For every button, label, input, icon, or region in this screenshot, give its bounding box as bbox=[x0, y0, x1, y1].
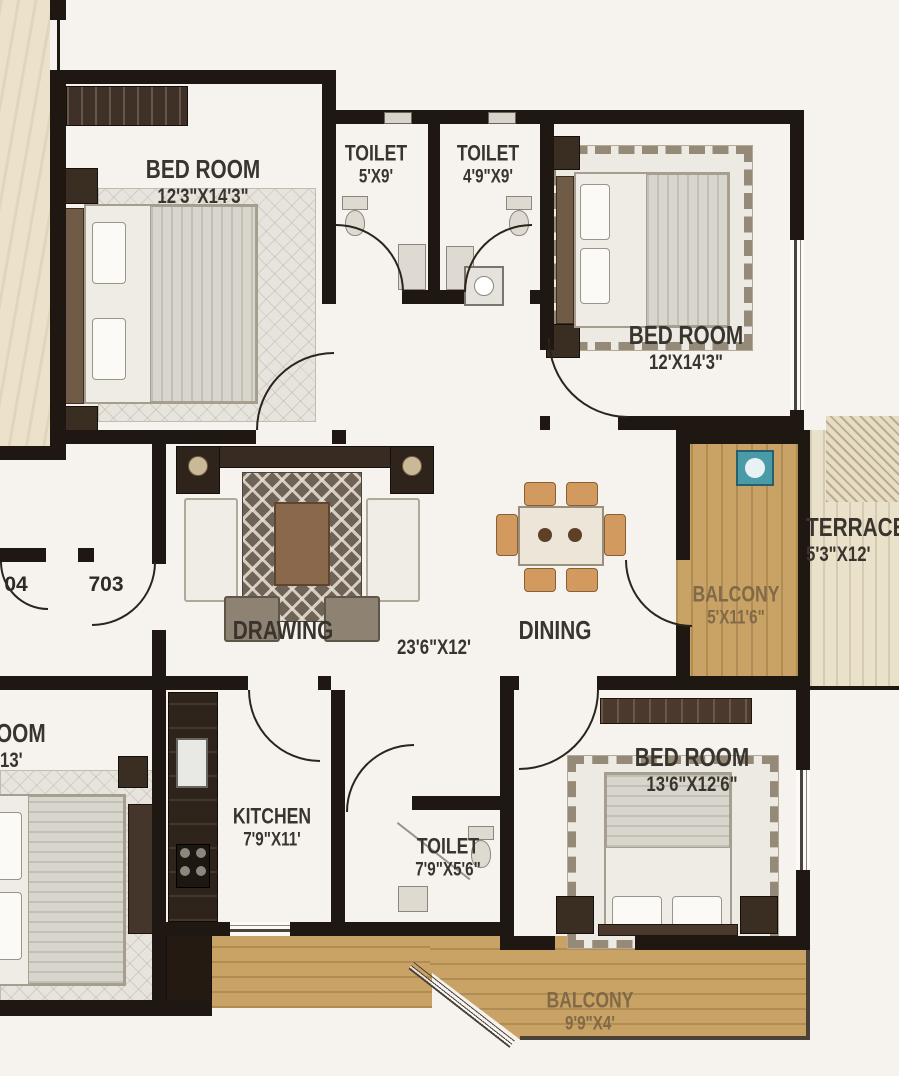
window bbox=[790, 240, 804, 410]
wall bbox=[152, 444, 166, 564]
wall bbox=[530, 290, 554, 304]
room-dims: 12'3"X14'3" bbox=[146, 184, 260, 210]
wall bbox=[0, 446, 66, 460]
bowl bbox=[568, 528, 582, 542]
wall bbox=[0, 676, 166, 690]
bed-blanket bbox=[646, 174, 728, 326]
room-name: BALCONY bbox=[546, 988, 633, 1013]
wall bbox=[635, 936, 810, 950]
bed-headboard bbox=[556, 176, 574, 324]
lamp bbox=[402, 456, 422, 476]
wall bbox=[790, 110, 804, 240]
room-name: BED ROOM bbox=[635, 742, 749, 772]
terrace-bottom-edge bbox=[810, 686, 899, 690]
room-label-bedroom-top-left: BED ROOM 12'3"X14'3" bbox=[132, 154, 275, 210]
ventilator bbox=[488, 112, 516, 124]
wall bbox=[290, 922, 510, 936]
dining-chair bbox=[496, 514, 518, 556]
room-name: BALCONY bbox=[692, 582, 779, 607]
wall bbox=[796, 690, 810, 770]
wall bbox=[500, 690, 514, 936]
burner bbox=[180, 866, 190, 876]
room-dims: '13' bbox=[0, 748, 46, 774]
wall bbox=[676, 444, 690, 560]
wall bbox=[412, 796, 510, 810]
bed-blanket bbox=[150, 206, 256, 402]
room-dims: 4'9"X9' bbox=[457, 166, 519, 190]
pillow bbox=[92, 222, 126, 284]
burner bbox=[196, 848, 206, 858]
sofa bbox=[366, 498, 420, 602]
wall bbox=[500, 676, 519, 690]
wall bbox=[332, 430, 346, 444]
room-label-toilet-top-right: TOILET 4'9"X9' bbox=[449, 141, 527, 190]
wall bbox=[796, 870, 810, 950]
room-name: DINING bbox=[519, 615, 592, 645]
wall bbox=[402, 290, 464, 304]
door-arc bbox=[346, 744, 414, 812]
wall bbox=[676, 430, 804, 444]
room-name: TERRACE bbox=[806, 512, 899, 542]
room-dims: 9'9"X4' bbox=[546, 1013, 633, 1037]
room-label-bedroom-top-right: BED ROOM 12'X14'3" bbox=[615, 320, 758, 376]
floor-plan: BED ROOM 12'3"X14'3" TOILET 5'X9' TOILET… bbox=[0, 0, 899, 1076]
wall bbox=[152, 690, 166, 1002]
room-label-toilet-top-left: TOILET 5'X9' bbox=[337, 141, 415, 190]
wall bbox=[318, 676, 331, 690]
wall bbox=[331, 796, 338, 810]
room-name: KITCHEN bbox=[233, 804, 311, 829]
dining-chair bbox=[566, 482, 598, 506]
room-label-terrace: TERRACE 5'3"X12' bbox=[806, 512, 899, 568]
window bbox=[796, 770, 810, 870]
room-dims: 7'9"X11' bbox=[233, 829, 311, 853]
exterior-beige-area bbox=[0, 0, 50, 446]
wall bbox=[152, 922, 230, 936]
window bbox=[230, 922, 290, 936]
dining-chair bbox=[566, 568, 598, 592]
door-arc bbox=[336, 224, 404, 292]
unit-number-703: 703 bbox=[88, 573, 123, 597]
bed-blanket bbox=[28, 796, 124, 984]
wardrobe bbox=[128, 804, 154, 934]
tv-console bbox=[188, 446, 422, 468]
room-dims: 13'6"X12'6" bbox=[635, 772, 749, 798]
room-label-balcony-bottom: BALCONY 9'9"X4' bbox=[536, 988, 645, 1037]
door-arc bbox=[248, 690, 320, 762]
room-dims: 5'3"X12' bbox=[806, 542, 899, 568]
wall bbox=[152, 676, 248, 690]
ventilator bbox=[384, 112, 412, 124]
wall bbox=[322, 290, 336, 304]
room-dims: 5'X9' bbox=[345, 166, 407, 190]
coffee-table bbox=[274, 502, 330, 586]
nightstand bbox=[64, 168, 98, 204]
kitchen-sink bbox=[176, 738, 208, 788]
wall bbox=[618, 416, 804, 430]
bowl bbox=[538, 528, 552, 542]
dining-chair bbox=[524, 568, 556, 592]
room-label-dining: DINING bbox=[510, 615, 601, 645]
room-name: TOILET bbox=[415, 834, 481, 859]
balcony-washbasin-bowl bbox=[745, 458, 765, 478]
toilet-wc bbox=[506, 196, 532, 210]
wall bbox=[0, 1000, 212, 1016]
nightstand bbox=[556, 896, 594, 934]
room-name: TOILET bbox=[345, 141, 407, 166]
pillow bbox=[0, 812, 22, 880]
room-dims: 7'9"X5'6" bbox=[415, 859, 481, 883]
burner bbox=[180, 848, 190, 858]
room-name: OOM bbox=[0, 718, 46, 748]
room-name: BED ROOM bbox=[146, 154, 260, 184]
room-name: DRAWING bbox=[233, 615, 334, 645]
room-dims: 5'X11'6" bbox=[692, 607, 779, 631]
room-label-bedroom-bottom-right: BED ROOM 13'6"X12'6" bbox=[621, 742, 764, 798]
wall bbox=[597, 676, 804, 690]
bed-headboard bbox=[598, 924, 738, 936]
wall bbox=[540, 124, 554, 350]
room-name: TOILET bbox=[457, 141, 519, 166]
hall-dimensions-label: 23'6"X12' bbox=[388, 635, 480, 661]
wall bbox=[322, 124, 336, 290]
washbasin bbox=[398, 886, 428, 912]
wall bbox=[78, 548, 94, 562]
bed-headboard bbox=[64, 208, 84, 404]
pillow bbox=[0, 892, 22, 960]
balcony-right-railing bbox=[806, 950, 810, 1040]
room-dims: 12'X14'3" bbox=[629, 350, 743, 376]
room-label-kitchen: KITCHEN 7'9"X11' bbox=[223, 804, 321, 853]
room-label-drawing: DRAWING bbox=[220, 615, 346, 645]
lamp bbox=[188, 456, 208, 476]
door-arc bbox=[464, 224, 532, 292]
wall bbox=[50, 0, 66, 20]
wardrobe bbox=[600, 698, 752, 724]
unit-number-text: 703 bbox=[88, 573, 123, 596]
toilet-wc bbox=[342, 196, 368, 210]
terrace-hatch-strip bbox=[826, 416, 899, 502]
room-label-balcony-right: BALCONY 5'X11'6" bbox=[682, 582, 791, 631]
pillow bbox=[580, 248, 610, 304]
room-label-toilet-bottom: TOILET 7'9"X5'6" bbox=[407, 834, 489, 883]
wall bbox=[50, 84, 66, 460]
dining-table bbox=[518, 506, 604, 566]
wall bbox=[500, 936, 555, 950]
wardrobe bbox=[66, 86, 188, 126]
room-label-bedroom-left-partial: OOM '13' bbox=[0, 718, 58, 774]
sofa bbox=[184, 498, 238, 602]
dining-chair bbox=[604, 514, 626, 556]
wall bbox=[57, 18, 60, 72]
room-dims: 23'6"X12' bbox=[397, 635, 471, 661]
burner bbox=[196, 866, 206, 876]
nightstand bbox=[118, 756, 148, 788]
wall bbox=[322, 70, 336, 124]
wall bbox=[50, 430, 256, 444]
unit-number-704: 04 bbox=[4, 573, 27, 597]
wall bbox=[428, 124, 440, 290]
wall bbox=[540, 416, 550, 430]
nightstand bbox=[740, 896, 778, 934]
unit-number-text: 04 bbox=[4, 573, 27, 596]
wall bbox=[50, 70, 336, 84]
service-strip-floor bbox=[212, 936, 432, 1008]
pillow bbox=[580, 184, 610, 240]
balcony-bottom-railing bbox=[520, 1036, 810, 1040]
pillow bbox=[92, 318, 126, 380]
dining-chair bbox=[524, 482, 556, 506]
room-name: BED ROOM bbox=[629, 320, 743, 350]
wall bbox=[0, 548, 46, 562]
